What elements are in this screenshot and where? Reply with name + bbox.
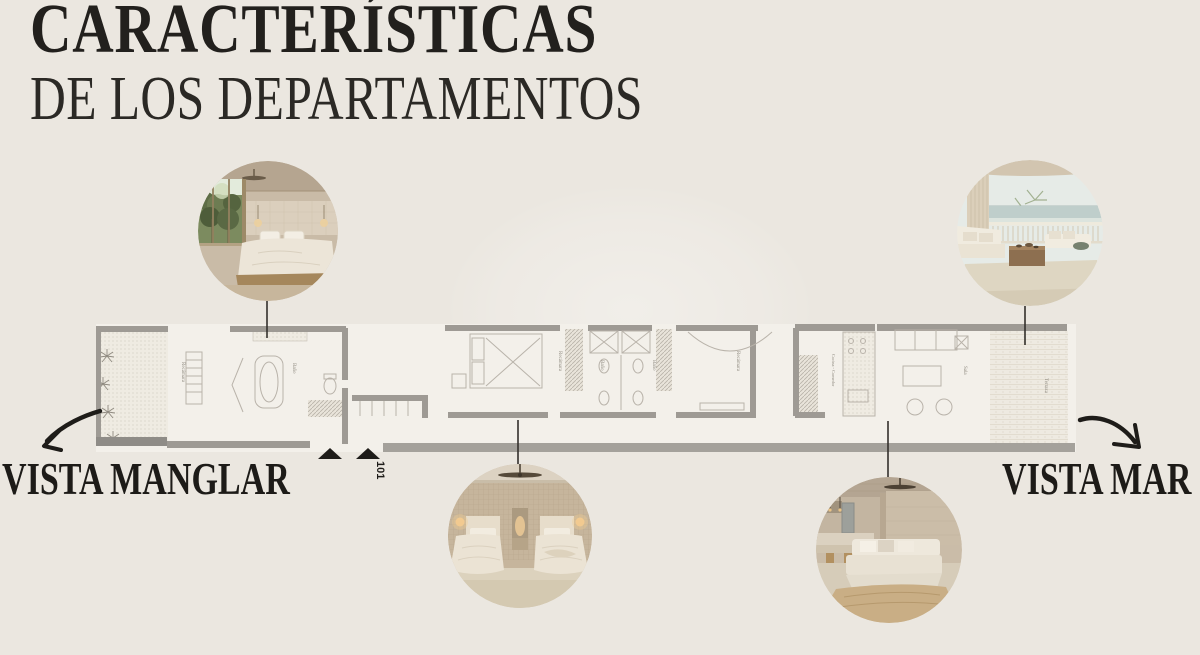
arrow-vista-manglar-icon [44,411,100,450]
terrace-sea-area [990,331,1068,443]
arrow-vista-mar-icon [1080,418,1139,447]
label-bedroom-2: Recámara [557,351,562,372]
label-bedroom-3: Recámara [735,351,740,372]
photo-bedroom-mangrove [198,161,338,301]
photo-living-kitchen [816,477,962,623]
label-vista-mar: VISTA MAR [1002,452,1200,505]
label-kitchen-dining: Cocina - Comedor [831,354,836,387]
label-terrace-sea: Terraza [1043,378,1048,394]
terrace-mangrove-area [98,331,168,441]
label-bath-2: Baño [599,360,604,371]
label-bath-3: Baño [651,360,656,371]
floor-plan: Recámara Baño Recámara Baño Baño Recámar… [0,0,1200,655]
brochure-slide: CARACTERÍSTICAS DE LOS DEPARTAMENTOS [0,0,1200,655]
photo-terrace-sea [957,160,1103,306]
label-vista-manglar: VISTA MANGLAR [2,452,391,505]
label-living: Sala [962,366,967,375]
photo-bedroom-twin [448,464,592,608]
label-bath-main: Baño [291,363,296,374]
label-bedroom-main: Recámara [180,362,185,383]
